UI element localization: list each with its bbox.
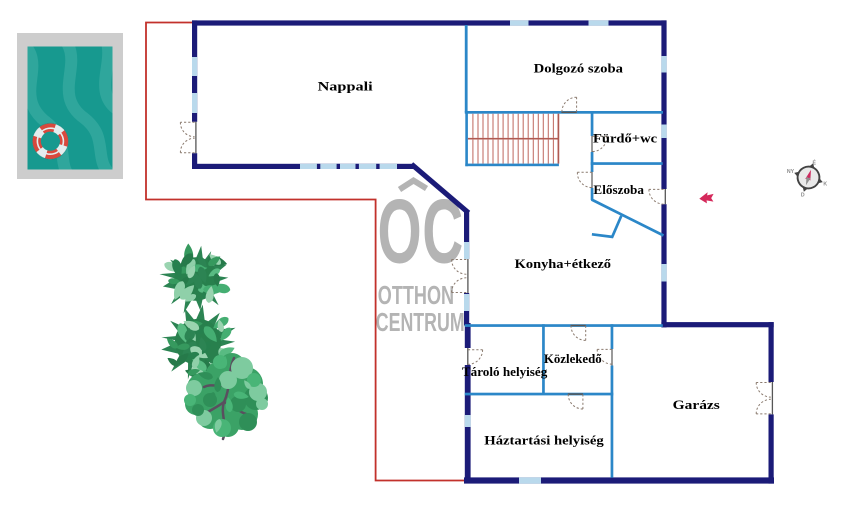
- svg-text:Tároló helyiség: Tároló helyiség: [462, 364, 548, 379]
- svg-text:OTTHON: OTTHON: [378, 281, 454, 310]
- svg-text:K: K: [823, 182, 827, 188]
- svg-text:Dolgozó szoba: Dolgozó szoba: [534, 62, 623, 76]
- svg-text:Háztartási helyiség: Háztartási helyiség: [484, 434, 604, 448]
- svg-text:D: D: [801, 193, 805, 199]
- svg-text:Fürdő+wc: Fürdő+wc: [593, 131, 657, 145]
- svg-text:Konyha+étkező: Konyha+étkező: [515, 257, 611, 271]
- svg-text:NY: NY: [787, 169, 795, 175]
- svg-text:CENTRUM: CENTRUM: [376, 308, 465, 337]
- svg-text:Garázs: Garázs: [673, 398, 721, 413]
- svg-text:É: É: [812, 158, 816, 166]
- svg-text:Előszoba: Előszoba: [593, 182, 644, 197]
- svg-text:Nappali: Nappali: [318, 80, 373, 94]
- svg-text:Közlekedő: Közlekedő: [544, 351, 602, 366]
